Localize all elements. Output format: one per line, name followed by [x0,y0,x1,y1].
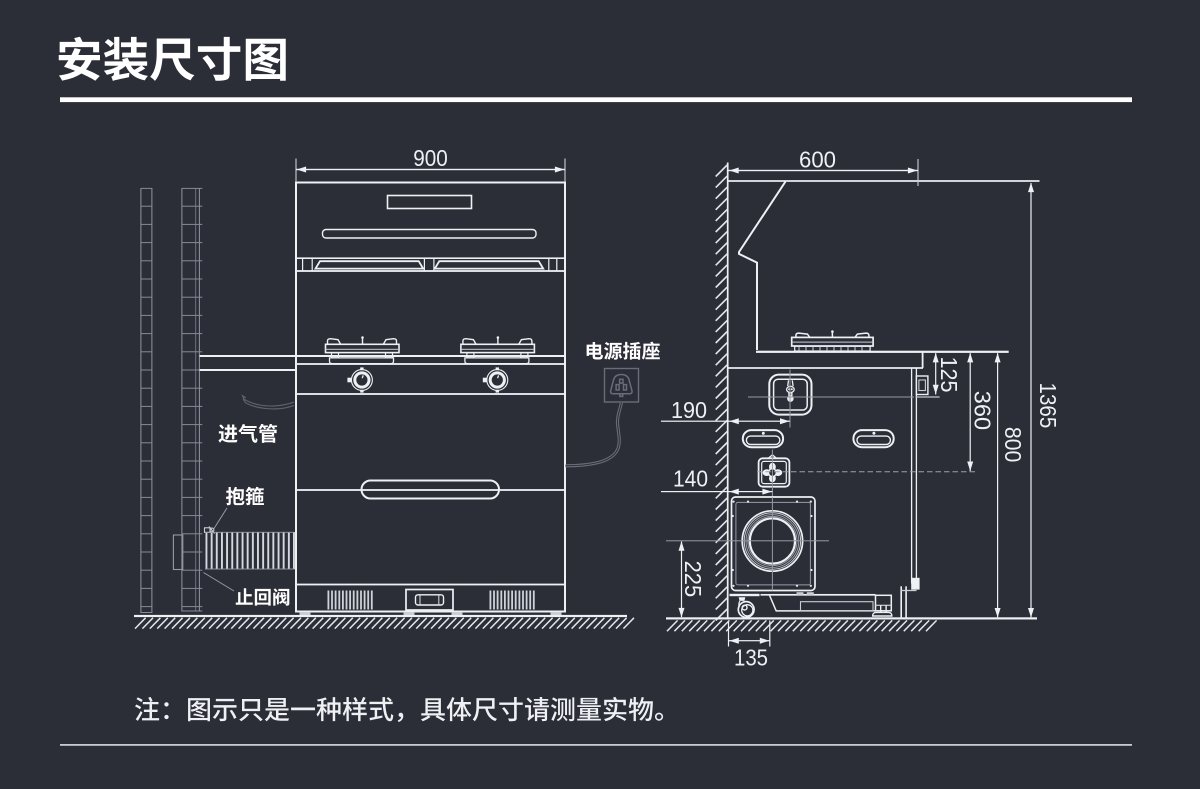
svg-text:600: 600 [799,146,836,172]
svg-text:125: 125 [936,357,962,393]
svg-text:135: 135 [734,645,768,671]
svg-text:190: 190 [671,397,707,423]
svg-text:360: 360 [970,391,996,430]
svg-text:140: 140 [673,465,708,491]
svg-text:225: 225 [680,561,706,598]
svg-text:1365: 1365 [1035,383,1061,429]
svg-text:800: 800 [1000,427,1026,463]
svg-text:900: 900 [413,145,448,171]
